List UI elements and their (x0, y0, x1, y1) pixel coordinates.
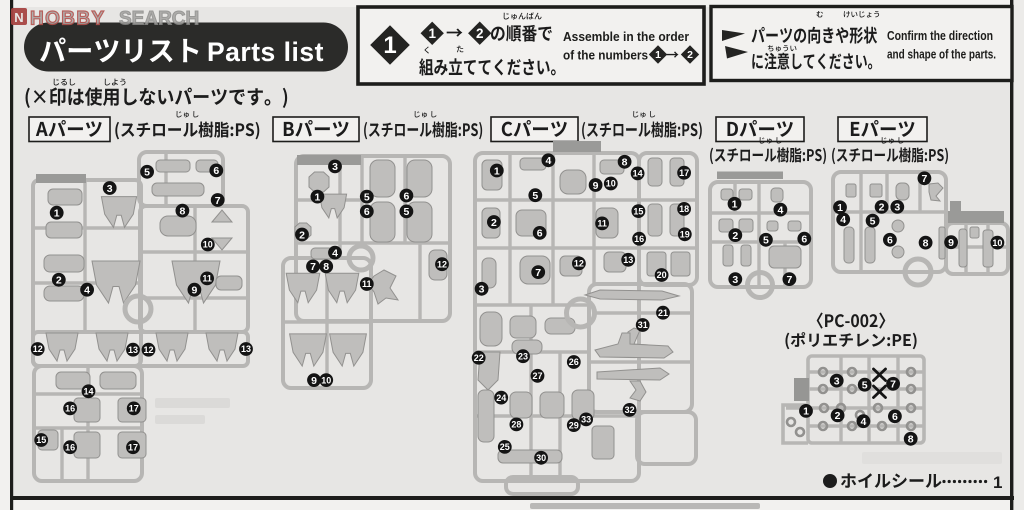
svg-text:8: 8 (622, 157, 628, 169)
svg-text:8: 8 (179, 205, 185, 217)
svg-text:3: 3 (834, 375, 840, 387)
svg-text:3: 3 (107, 183, 113, 195)
svg-text:8: 8 (323, 261, 329, 273)
svg-text:8: 8 (908, 434, 914, 446)
svg-text:12: 12 (33, 344, 43, 354)
svg-text:9: 9 (948, 237, 954, 249)
svg-text:25: 25 (500, 442, 510, 452)
svg-text:13: 13 (623, 255, 633, 265)
svg-text:18: 18 (679, 204, 689, 214)
svg-text:6: 6 (801, 234, 807, 246)
svg-text:29: 29 (569, 420, 579, 430)
svg-text:of the numbers: of the numbers (563, 48, 648, 63)
svg-text:5: 5 (364, 191, 370, 203)
svg-text:27: 27 (532, 371, 542, 381)
svg-text:28: 28 (511, 420, 521, 430)
svg-text:9: 9 (593, 180, 599, 192)
svg-text:7: 7 (310, 261, 316, 273)
svg-text:1: 1 (428, 26, 436, 41)
svg-text:5: 5 (763, 235, 769, 247)
svg-text:12: 12 (437, 259, 447, 269)
svg-text:4: 4 (332, 247, 338, 259)
svg-text:3: 3 (894, 202, 900, 214)
svg-text:19: 19 (680, 230, 690, 240)
svg-text:Parts list: Parts list (207, 37, 324, 67)
svg-text:1: 1 (54, 208, 60, 220)
svg-text:10: 10 (992, 238, 1002, 248)
svg-text:1: 1 (993, 473, 1002, 492)
svg-text:2: 2 (299, 229, 305, 241)
svg-text:7: 7 (215, 195, 221, 207)
svg-text:5: 5 (403, 206, 409, 218)
svg-text:7: 7 (890, 379, 896, 391)
svg-text:6: 6 (892, 411, 898, 423)
svg-text:4: 4 (545, 155, 551, 167)
svg-text:21: 21 (658, 308, 668, 318)
svg-text:6: 6 (403, 190, 409, 202)
svg-text:7: 7 (786, 274, 792, 286)
svg-text:5: 5 (144, 167, 150, 179)
svg-text:12: 12 (143, 345, 153, 355)
svg-text:11: 11 (202, 274, 212, 284)
svg-text:13: 13 (241, 344, 251, 354)
svg-text:6: 6 (537, 228, 543, 240)
svg-text:10: 10 (203, 240, 213, 250)
svg-text:10: 10 (321, 375, 331, 385)
svg-text:9: 9 (191, 285, 197, 297)
svg-text:6: 6 (213, 165, 219, 177)
svg-text:4: 4 (840, 214, 846, 226)
svg-text:8: 8 (923, 237, 929, 249)
svg-text:and shape of the parts.: and shape of the parts. (887, 47, 996, 62)
svg-text:7: 7 (921, 173, 927, 185)
svg-text:Confirm the direction: Confirm the direction (887, 28, 993, 43)
svg-text:33: 33 (581, 415, 591, 425)
svg-text:2: 2 (56, 275, 62, 287)
svg-text:20: 20 (657, 270, 667, 280)
svg-text:2: 2 (732, 230, 738, 242)
svg-text:32: 32 (625, 405, 635, 415)
svg-text:30: 30 (536, 453, 546, 463)
svg-text:4: 4 (777, 204, 783, 216)
svg-text:9: 9 (311, 375, 317, 387)
svg-text:6: 6 (364, 206, 370, 218)
svg-text:17: 17 (679, 168, 689, 178)
svg-text:N: N (14, 10, 23, 25)
svg-text:4: 4 (84, 285, 90, 297)
svg-text:3: 3 (479, 284, 485, 296)
svg-text:1: 1 (655, 49, 661, 61)
svg-text:6: 6 (887, 235, 893, 247)
svg-text:SEARCH: SEARCH (119, 9, 199, 30)
svg-text:16: 16 (65, 442, 75, 452)
svg-text:7: 7 (535, 267, 541, 279)
svg-text:13: 13 (128, 345, 138, 355)
svg-text:2: 2 (491, 217, 497, 229)
svg-text:11: 11 (597, 219, 607, 229)
svg-text:26: 26 (569, 357, 579, 367)
svg-text:3: 3 (332, 161, 338, 173)
svg-text:2: 2 (879, 202, 885, 214)
svg-text:1: 1 (383, 32, 396, 59)
svg-text:15: 15 (36, 435, 46, 445)
svg-text:16: 16 (65, 404, 75, 414)
svg-text:17: 17 (128, 442, 138, 452)
svg-text:5: 5 (532, 190, 538, 202)
svg-text:24: 24 (496, 393, 506, 403)
svg-text:2: 2 (835, 410, 841, 422)
svg-text:4: 4 (860, 416, 866, 428)
svg-text:2: 2 (687, 49, 693, 61)
svg-text:5: 5 (862, 380, 868, 392)
svg-text:16: 16 (634, 234, 644, 244)
svg-text:14: 14 (633, 169, 643, 179)
svg-text:1: 1 (732, 199, 738, 211)
svg-text:10: 10 (606, 179, 616, 189)
svg-text:3: 3 (732, 274, 738, 286)
svg-text:Assemble in the order: Assemble in the order (563, 29, 689, 44)
svg-text:5: 5 (870, 215, 876, 227)
svg-text:12: 12 (574, 259, 584, 269)
svg-text:11: 11 (362, 279, 372, 289)
svg-text:22: 22 (474, 353, 484, 363)
svg-text:1: 1 (803, 406, 809, 418)
svg-text:17: 17 (129, 404, 139, 414)
svg-text:23: 23 (518, 351, 528, 361)
svg-text:31: 31 (638, 320, 648, 330)
svg-text:1: 1 (494, 165, 500, 177)
svg-text:1: 1 (314, 191, 320, 203)
svg-text:15: 15 (633, 206, 643, 216)
svg-text:2: 2 (476, 26, 484, 41)
svg-text:14: 14 (83, 387, 93, 397)
svg-text:HOBBY: HOBBY (30, 9, 106, 30)
svg-text:1: 1 (837, 202, 843, 214)
